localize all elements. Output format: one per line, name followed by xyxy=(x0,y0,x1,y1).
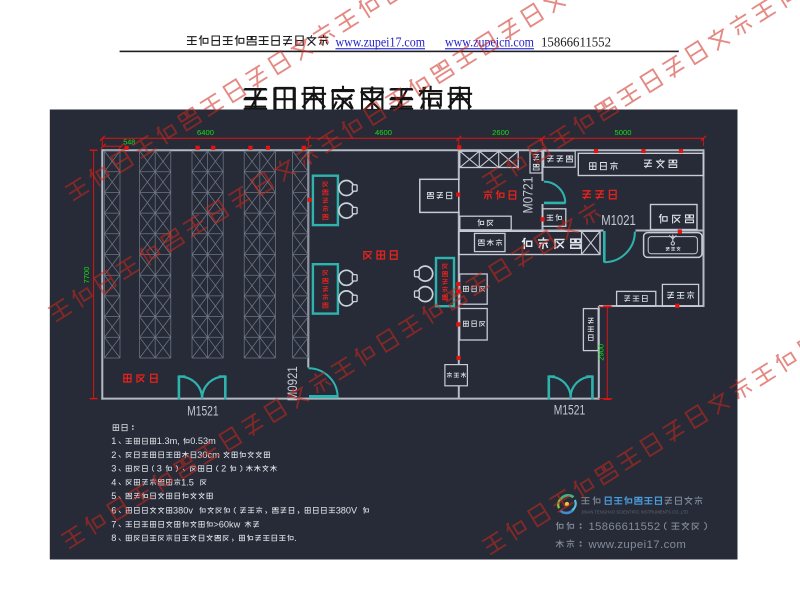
svg-text:3: 3 xyxy=(111,464,116,474)
svg-text:2900: 2900 xyxy=(597,344,606,361)
svg-text:4600: 4600 xyxy=(375,128,392,137)
svg-text:>60kw: >60kw xyxy=(213,519,240,529)
svg-text:15866611552: 15866611552 xyxy=(589,521,661,533)
svg-text:4: 4 xyxy=(111,477,116,487)
svg-text:.: . xyxy=(294,533,297,543)
svg-text:0.53m: 0.53m xyxy=(190,436,216,446)
svg-text:15866611552: 15866611552 xyxy=(541,34,611,49)
svg-text:3: 3 xyxy=(157,464,162,474)
svg-text:M1521: M1521 xyxy=(187,404,219,419)
svg-text:2: 2 xyxy=(221,464,226,474)
svg-text:5000: 5000 xyxy=(615,128,632,137)
svg-text:8: 8 xyxy=(111,533,116,543)
svg-text:www.zupei17.com: www.zupei17.com xyxy=(588,539,687,551)
svg-text:7700: 7700 xyxy=(82,267,91,284)
svg-text:7: 7 xyxy=(111,519,116,529)
svg-text:380V: 380V xyxy=(336,505,358,515)
svg-text:JINAN TENGHAO SCIENTIFIC INSTR: JINAN TENGHAO SCIENTIFIC INSTRUMENTS CO.… xyxy=(581,510,689,515)
svg-text:2600: 2600 xyxy=(492,128,509,137)
svg-text:M0721: M0721 xyxy=(520,177,535,214)
svg-text:M1021: M1021 xyxy=(601,212,636,229)
svg-text:1.3m,: 1.3m, xyxy=(157,436,180,446)
svg-text:1: 1 xyxy=(111,436,116,446)
svg-text:2: 2 xyxy=(111,450,116,460)
svg-text:M1521: M1521 xyxy=(554,402,586,417)
svg-text:6400: 6400 xyxy=(197,128,214,137)
svg-text:www.zupei17.com: www.zupei17.com xyxy=(336,34,426,49)
svg-text:380v: 380v xyxy=(173,505,193,515)
